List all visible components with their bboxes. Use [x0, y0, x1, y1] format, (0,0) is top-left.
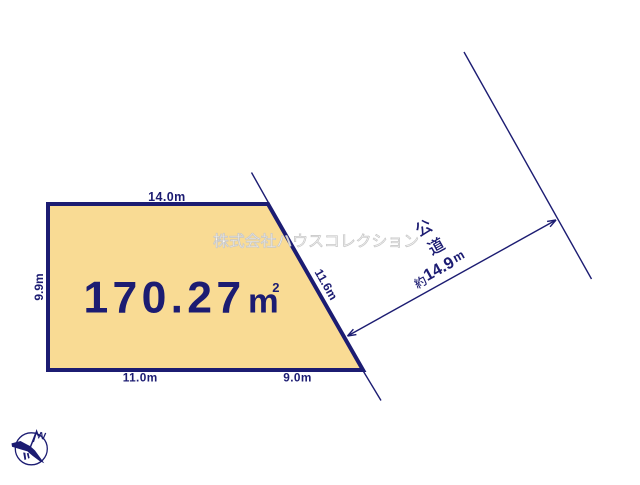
svg-text:9.9m: 9.9m: [32, 273, 46, 300]
svg-text:9.0m: 9.0m: [283, 371, 312, 385]
svg-text:14.0m: 14.0m: [148, 190, 185, 204]
svg-text:170.27: 170.27: [84, 273, 246, 322]
svg-text:2: 2: [272, 280, 279, 295]
svg-text:11.0m: 11.0m: [123, 371, 158, 385]
